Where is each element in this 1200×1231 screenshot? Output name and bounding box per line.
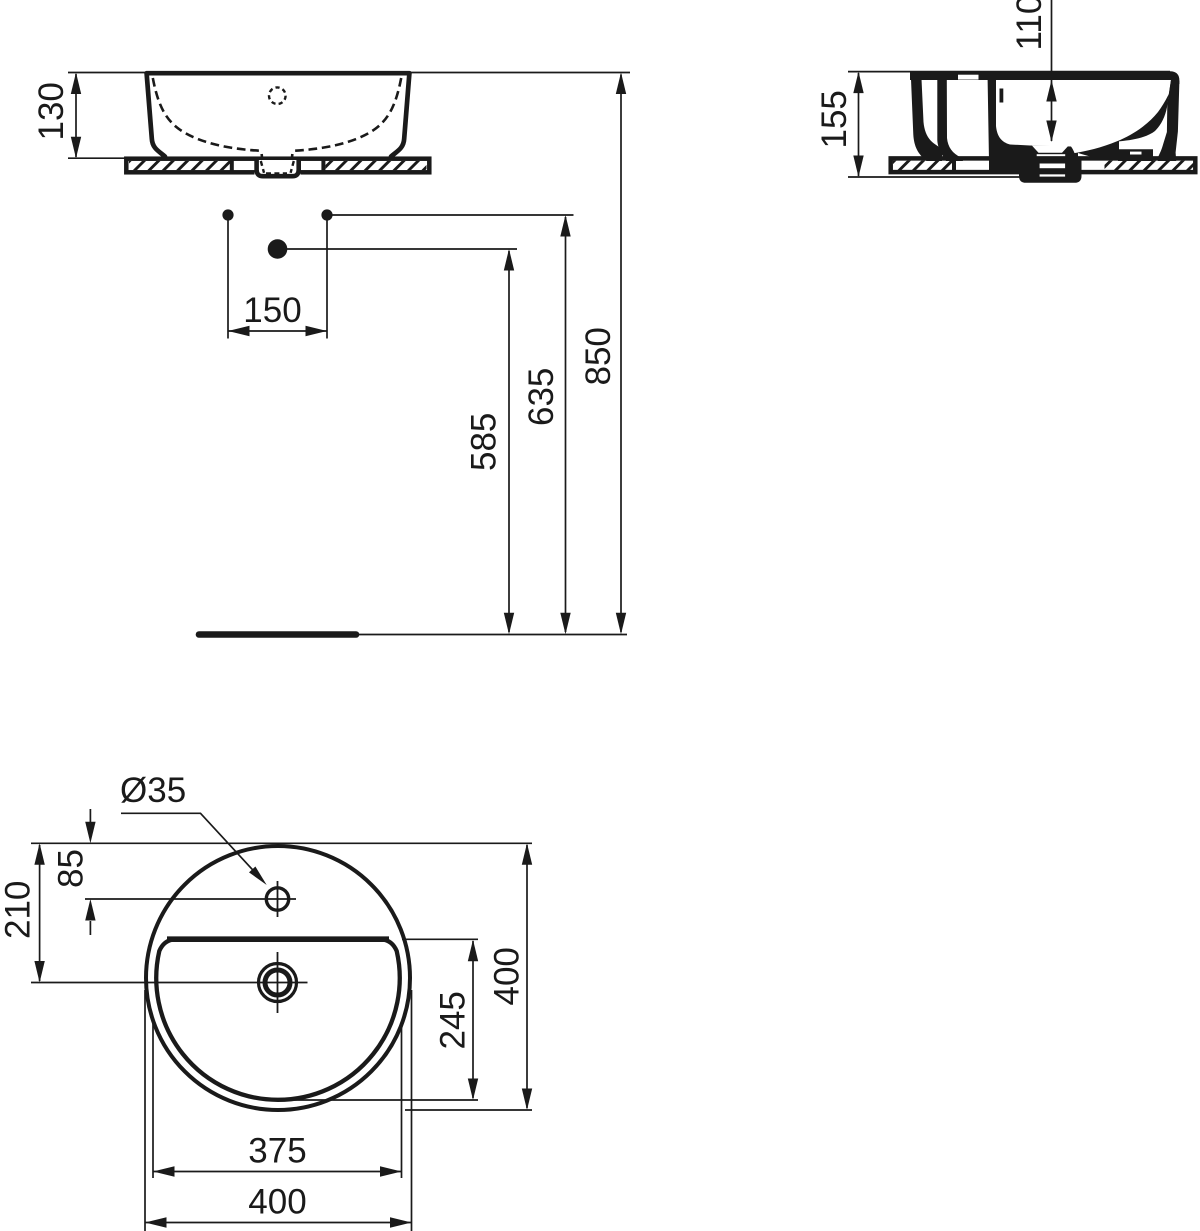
svg-text:Ø35: Ø35 <box>120 771 186 810</box>
svg-text:155: 155 <box>815 90 854 148</box>
svg-text:585: 585 <box>465 413 504 471</box>
svg-text:85: 85 <box>52 849 91 888</box>
svg-text:150: 150 <box>243 291 301 330</box>
svg-text:375: 375 <box>248 1132 306 1171</box>
svg-text:245: 245 <box>434 991 473 1049</box>
svg-text:400: 400 <box>248 1183 306 1222</box>
svg-text:850: 850 <box>579 327 618 385</box>
svg-text:110: 110 <box>1010 0 1049 51</box>
svg-text:130: 130 <box>32 82 71 140</box>
svg-text:400: 400 <box>488 947 527 1005</box>
svg-text:635: 635 <box>522 368 561 426</box>
svg-text:210: 210 <box>0 881 38 939</box>
